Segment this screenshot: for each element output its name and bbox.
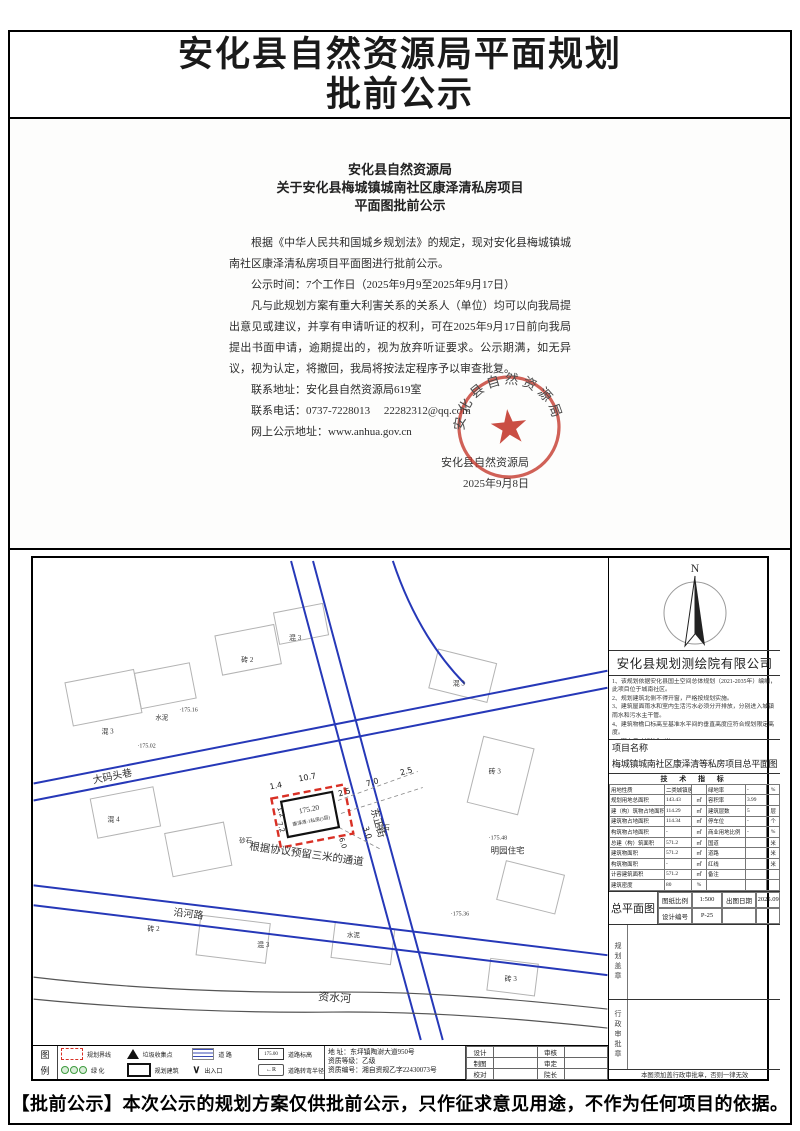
spacer bbox=[229, 215, 571, 233]
tech-unit: % bbox=[767, 784, 780, 795]
tech-unit bbox=[767, 869, 780, 880]
signoff-row: 制图 审定 bbox=[467, 1058, 608, 1069]
tech-label: 建筑层数 bbox=[707, 806, 746, 817]
admin-approval-seal-label: 行政审批章 bbox=[609, 1000, 628, 1069]
letter-paragraph-2: 公示时间：7个工作日（2025年9月9至2025年9月17日） bbox=[229, 275, 571, 296]
signoff-role: 审核 bbox=[537, 1047, 564, 1058]
legend-item-elevation: 175.00 道路标高 bbox=[255, 1048, 324, 1060]
legend-label: 规划建筑 bbox=[155, 1066, 179, 1075]
notice-letter: 安化县自然资源局 关于安化县梅城镇城南社区康泽清私房项目 平面图批前公示 根据《… bbox=[229, 119, 571, 495]
tech-label: 建筑物面积 bbox=[610, 848, 665, 859]
tech-value: - bbox=[746, 827, 767, 838]
page-title: 安化县自然资源局平面规划 批前公示 bbox=[10, 32, 790, 119]
legend-label: 出入口 bbox=[204, 1066, 222, 1075]
tech-unit: ㎡ bbox=[692, 869, 707, 880]
tech-label: 建（构）筑物占地面积 bbox=[610, 806, 665, 817]
signoff-role: 审定 bbox=[537, 1058, 564, 1069]
design-no-value: P-25 bbox=[692, 908, 722, 924]
tech-row: 建筑物面积 571.2 ㎡ 道路 米 bbox=[610, 848, 780, 859]
tech-value: 143.43 bbox=[665, 795, 692, 806]
tech-unit: 米 bbox=[767, 837, 780, 848]
map-label: 混 3 bbox=[101, 727, 114, 736]
legend-label: 道路标高 bbox=[288, 1050, 312, 1059]
legend-title: 图 例 bbox=[33, 1046, 58, 1079]
map-column: 175.20 康泽清-1私房(5层) 1.4 10.7 2.5 7.0 2.5 … bbox=[33, 558, 608, 1079]
legend-title-top: 图 bbox=[40, 1048, 49, 1061]
tech-value bbox=[746, 880, 767, 891]
entrance-icon: ∨ bbox=[192, 1065, 200, 1075]
legend-label: 规划界线 bbox=[87, 1050, 111, 1059]
blank-cell bbox=[722, 908, 756, 924]
tech-unit: ㎡ bbox=[692, 795, 707, 806]
signoff-blank bbox=[564, 1058, 608, 1069]
tech-label: 绿地率 bbox=[707, 784, 746, 795]
drawing-name: 总平面图 bbox=[609, 892, 658, 924]
map-label: ·175.48 bbox=[489, 835, 507, 841]
tech-value bbox=[746, 869, 767, 880]
tech-label: 建筑物占地面积 bbox=[610, 816, 665, 827]
signoff-blank bbox=[494, 1058, 538, 1069]
scale-label: 图纸比例 bbox=[658, 892, 692, 908]
tech-value bbox=[746, 858, 767, 869]
place-label-mingyuan: 明园住宅 bbox=[491, 845, 525, 855]
letter-heading2: 关于安化县梅城镇城南社区康泽清私房项目 bbox=[229, 179, 571, 197]
tech-value: 80 bbox=[665, 880, 692, 891]
tech-unit bbox=[767, 880, 780, 891]
map-label: 混 3 bbox=[257, 940, 270, 949]
tech-unit: 米 bbox=[767, 858, 780, 869]
tech-unit: 层 bbox=[767, 806, 780, 817]
tech-unit: ㎡ bbox=[692, 837, 707, 848]
dim-label: 7.0 bbox=[365, 776, 380, 788]
tech-row: 建筑密度 80 % bbox=[610, 880, 780, 891]
project-name-label: 项目名称 bbox=[612, 741, 777, 754]
technical-indicators: 技 术 指 标 用地性质 二类城镇居住用地 绿地率 - bbox=[609, 774, 780, 892]
signoff-blank bbox=[564, 1069, 608, 1080]
tech-value: 3.99 bbox=[746, 795, 767, 806]
page-title-line1: 安化县自然资源局平面规划 bbox=[178, 35, 622, 75]
legend-label: 垃圾收集点 bbox=[143, 1050, 173, 1059]
plan-note: 3、建筑屋面雨水和室内生活污水必须分开排放，分别进入城镇雨水和污水主干管。 bbox=[612, 703, 777, 720]
river-label-zishui: 资水河 bbox=[318, 990, 352, 1005]
legend-item-radius: ←R 道路转弯半径 bbox=[255, 1064, 324, 1076]
company-grade: 资质等级：乙级 bbox=[328, 1057, 462, 1066]
drawing-title-panel: N 安化县规划测绘院有限公司 1、该规划依据安化县国土空间总体规划（2021-2… bbox=[608, 558, 780, 1079]
tech-row: 建筑物占地面积 114.34 ㎡ 停车位 - 个 bbox=[610, 816, 780, 827]
map-label: 砂石 bbox=[239, 835, 252, 844]
map-label: 砂石 bbox=[377, 822, 390, 831]
tech-row: 总建（构）筑面积 571.2 ㎡ 国道 米 bbox=[610, 837, 780, 848]
legend-label: 绿 化 bbox=[91, 1066, 105, 1075]
legend-item-green: 绿 化 bbox=[58, 1066, 124, 1075]
plan-note: 1、该规划依据安化县国土空间总体规划（2021-2035年）编制，此项目位于城南… bbox=[612, 678, 777, 695]
tech-label: 总建（构）筑面积 bbox=[610, 837, 665, 848]
dim-label: 6.0 bbox=[337, 837, 348, 850]
letter-heading3: 平面图批前公示 bbox=[229, 197, 571, 215]
tech-label: 商业用地比例 bbox=[707, 827, 746, 838]
map-label: 水泥 bbox=[155, 713, 168, 722]
garbage-point-icon bbox=[127, 1049, 139, 1059]
north-arrow: N bbox=[613, 558, 777, 650]
tech-table-title: 技 术 指 标 bbox=[609, 774, 780, 784]
company-address: 地 址：东坪镇陶澍大道950号 bbox=[328, 1048, 462, 1057]
tech-unit: % bbox=[767, 827, 780, 838]
legend-item-road: 道 路 bbox=[189, 1048, 255, 1060]
dim-label: 3.0 bbox=[361, 825, 373, 840]
north-label: N bbox=[690, 561, 699, 575]
tech-value: - bbox=[746, 784, 767, 795]
tech-value: 571.2 bbox=[665, 837, 692, 848]
tech-table: 用地性质 二类城镇居住用地 绿地率 - % 规划用地总面积 bbox=[609, 784, 780, 891]
tech-label: 红线 bbox=[707, 858, 746, 869]
tech-label: 备注 bbox=[707, 869, 746, 880]
road-icon bbox=[192, 1048, 214, 1060]
admin-approval-seal-box: 行政审批章 bbox=[609, 1000, 780, 1070]
tech-value: 二类城镇居住用地 bbox=[665, 784, 692, 795]
legend-item-boundary: 规划界线 bbox=[58, 1048, 124, 1060]
legend-title-bottom: 例 bbox=[40, 1064, 49, 1077]
blank-cell bbox=[756, 908, 780, 924]
legend-item-building: 规划建筑 bbox=[124, 1063, 190, 1077]
tech-label: 计容建筑面积 bbox=[610, 869, 665, 880]
tech-unit: ㎡ bbox=[692, 848, 707, 859]
tech-value: - bbox=[746, 816, 767, 827]
tech-value: 5 bbox=[746, 806, 767, 817]
map-label: 混 3 bbox=[453, 679, 466, 688]
dim-label: 2.5 bbox=[337, 786, 352, 798]
map-label: 砖 2 bbox=[147, 924, 160, 933]
tech-label: 道路 bbox=[707, 848, 746, 859]
tech-label: 容积率 bbox=[707, 795, 746, 806]
dim-label: 10.7 bbox=[298, 771, 317, 783]
signoff-role: 设计 bbox=[467, 1047, 494, 1058]
letter-paragraph-3: 凡与此规划方案有重大利害关系的关系人（单位）均可以向我局提出意见或建议，并享有申… bbox=[229, 296, 571, 380]
tech-label: 用地性质 bbox=[610, 784, 665, 795]
signoff-role: 制图 bbox=[467, 1058, 494, 1069]
tech-value: 571.2 bbox=[665, 869, 692, 880]
map-label: 混 3 bbox=[289, 633, 302, 642]
greenery-icon bbox=[61, 1066, 87, 1074]
tech-unit: 个 bbox=[767, 816, 780, 827]
stamp-validity-note: 本图须加盖行政审批章，否则一律无效 bbox=[609, 1070, 780, 1079]
legend-item-entrance: ∨ 出入口 bbox=[189, 1065, 255, 1075]
tech-row: 用地性质 二类城镇居住用地 绿地率 - % bbox=[610, 784, 780, 795]
signoff-table: 设计 审核 制图 审定 bbox=[466, 1046, 608, 1080]
map-label: ·175.36 bbox=[451, 911, 469, 917]
tech-label: 构筑物面积 bbox=[610, 858, 665, 869]
planning-seal-space bbox=[628, 925, 780, 1000]
tech-label: 建筑密度 bbox=[610, 880, 665, 891]
tech-unit: ㎡ bbox=[692, 827, 707, 838]
plan-note: 4、建筑物檐口标高至基准水平间的垂直高度应符合规划限定高度。 bbox=[612, 721, 777, 738]
plan-notes: 1、该规划依据安化县国土空间总体规划（2021-2035年）编制，此项目位于城南… bbox=[609, 676, 780, 741]
legend-items: 规划界线 垃圾收集点 道 路 175.00 道路标高 bbox=[58, 1046, 325, 1079]
tech-value bbox=[746, 848, 767, 859]
signoff-blank bbox=[494, 1047, 538, 1058]
north-arrow-box: N bbox=[609, 558, 780, 651]
signoff-block: 设计 审核 制图 审定 bbox=[466, 1046, 608, 1079]
title-block: 总平面图 图纸比例 1:500 出图日期 2025.09 设计编号 P-25 bbox=[609, 892, 780, 925]
page-title-line2: 批前公示 bbox=[326, 75, 474, 115]
map-label: 砖 2 bbox=[241, 655, 254, 664]
tech-value bbox=[746, 837, 767, 848]
dim-label: 2.5 bbox=[399, 765, 414, 777]
tech-label bbox=[707, 880, 746, 891]
tech-row: 建（构）筑物占地面积 114.29 ㎡ 建筑层数 5 层 bbox=[610, 806, 780, 817]
admin-approval-seal-space bbox=[628, 1000, 780, 1069]
project-name: 梅城镇城南社区康泽清等私房项目总平面图 bbox=[612, 757, 777, 770]
tech-unit bbox=[767, 795, 780, 806]
tech-value: 114.29 bbox=[665, 806, 692, 817]
tech-value: 114.34 bbox=[665, 816, 692, 827]
scale-value: 1:500 bbox=[692, 892, 722, 908]
dim-label: 1.4 bbox=[269, 780, 283, 791]
map-label: ·175.02 bbox=[137, 744, 155, 750]
letter-heading1: 安化县自然资源局 bbox=[229, 161, 571, 179]
tech-row: 构筑物面积 - ㎡ 红线 米 bbox=[610, 858, 780, 869]
map-label: 水泥 bbox=[347, 930, 360, 939]
date-value: 2025.09 bbox=[756, 892, 780, 908]
map-label: ·175.16 bbox=[179, 708, 197, 714]
seal-star bbox=[489, 407, 528, 444]
company-cert-no: 资质编号：湘自资规乙字22430073号 bbox=[328, 1066, 462, 1075]
footer-disclaimer: 【批前公示】本次公示的规划方案仅供批前公示，只作征求意见用途，不作为任何项目的依… bbox=[10, 1090, 790, 1116]
plot-boundary-icon bbox=[61, 1048, 83, 1060]
legend-label: 道路转弯半径 bbox=[288, 1066, 324, 1075]
map-label: 混 4 bbox=[107, 814, 120, 823]
official-seal: 安化县自然资源局 bbox=[447, 365, 570, 488]
tech-row: 规划用地总面积 143.43 ㎡ 容积率 3.99 bbox=[610, 795, 780, 806]
site-plan-map: 175.20 康泽清-1私房(5层) 1.4 10.7 2.5 7.0 2.5 … bbox=[33, 558, 608, 1045]
letter-paragraph-1: 根据《中华人民共和国城乡规划法》的规定，现对安化县梅城镇城南社区康泽清私房项目平… bbox=[229, 233, 571, 275]
signoff-row: 校对 院长 bbox=[467, 1069, 608, 1080]
building-outline bbox=[281, 792, 339, 837]
survey-company-name: 安化县规划测绘院有限公司 bbox=[609, 651, 780, 676]
tech-row: 计容建筑面积 571.2 ㎡ 备注 bbox=[610, 869, 780, 880]
tech-unit: ㎡ bbox=[692, 816, 707, 827]
legend-item-garbage: 垃圾收集点 bbox=[124, 1049, 190, 1059]
tech-unit: ㎡ bbox=[692, 858, 707, 869]
turn-radius-icon: ←R bbox=[258, 1064, 284, 1076]
signoff-row: 设计 审核 bbox=[467, 1047, 608, 1058]
tech-label: 规划用地总面积 bbox=[610, 795, 665, 806]
contact-phone: 联系电话：0737-7228013 bbox=[251, 405, 370, 417]
tech-value: - bbox=[665, 827, 692, 838]
map-label: 砖 3 bbox=[505, 974, 518, 983]
signoff-role: 校对 bbox=[467, 1069, 494, 1080]
map-label: 砖 3 bbox=[489, 767, 502, 776]
planned-building-icon bbox=[127, 1063, 151, 1077]
planning-seal-box: 规划盖章 bbox=[609, 925, 780, 1001]
legend-label: 道 路 bbox=[218, 1050, 232, 1059]
tech-unit: 米 bbox=[767, 848, 780, 859]
planning-seal-label: 规划盖章 bbox=[609, 925, 628, 1000]
tech-unit: % bbox=[692, 880, 707, 891]
date-label: 出图日期 bbox=[722, 892, 756, 908]
tech-label: 停车位 bbox=[707, 816, 746, 827]
road-elevation-icon: 175.00 bbox=[258, 1048, 284, 1060]
notice-letter-area: 安化县自然资源局 关于安化县梅城镇城南社区康泽清私房项目 平面图批前公示 根据《… bbox=[10, 119, 790, 550]
signoff-blank bbox=[494, 1069, 538, 1080]
road-label-yanhe: 沿河路 bbox=[173, 905, 204, 922]
tech-value: 571.2 bbox=[665, 848, 692, 859]
design-no-label: 设计编号 bbox=[658, 908, 692, 924]
tech-unit: ㎡ bbox=[692, 806, 707, 817]
tech-row: 构筑物占地面积 - ㎡ 商业用地比例 - % bbox=[610, 827, 780, 838]
tech-value: - bbox=[665, 858, 692, 869]
title-block-grid: 图纸比例 1:500 出图日期 2025.09 设计编号 P-25 bbox=[658, 892, 780, 924]
outer-border: 安化县自然资源局平面规划 批前公示 安化县自然资源局 关于安化县梅城镇城南社区康… bbox=[8, 30, 792, 1125]
credentials-block: 地 址：东坪镇陶澍大道950号 资质等级：乙级 资质编号：湘自资规乙字22430… bbox=[325, 1046, 466, 1079]
tech-unit bbox=[692, 784, 707, 795]
tech-label: 构筑物占地面积 bbox=[610, 827, 665, 838]
plan-note: 2、规划建筑北侧不得开窗，严格按规划实施。 bbox=[612, 695, 777, 704]
notice-page: 安化县自然资源局平面规划 批前公示 安化县自然资源局 关于安化县梅城镇城南社区康… bbox=[0, 0, 800, 1131]
site-plan-figure: 175.20 康泽清-1私房(5层) 1.4 10.7 2.5 7.0 2.5 … bbox=[31, 556, 769, 1081]
project-name-box: 项目名称 梅城镇城南社区康泽清等私房项目总平面图 bbox=[609, 740, 780, 773]
legend-strip: 图 例 规划界线 垃圾收集点 bbox=[33, 1045, 608, 1079]
tech-label: 国道 bbox=[707, 837, 746, 848]
signoff-blank bbox=[564, 1047, 608, 1058]
signoff-role: 院长 bbox=[537, 1069, 564, 1080]
